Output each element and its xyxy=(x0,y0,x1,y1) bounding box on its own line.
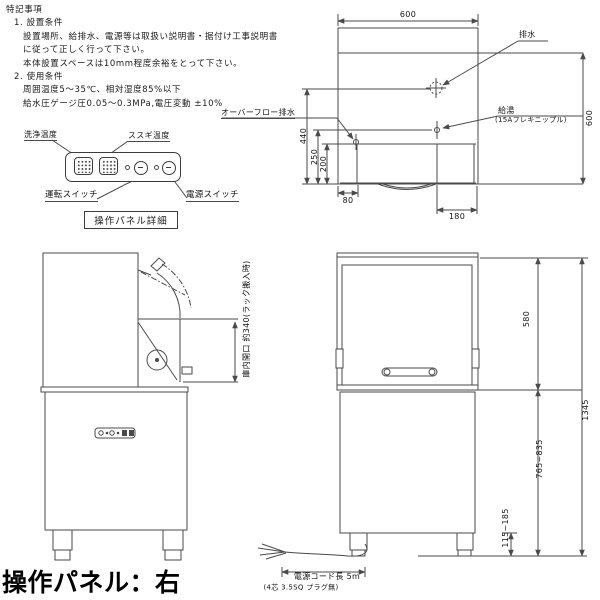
dim-label-180: 180 xyxy=(449,213,465,221)
side-leg-left xyxy=(53,530,72,550)
wash-temp-display xyxy=(74,157,93,175)
hood-front-arc xyxy=(157,273,180,318)
dim-label-440: 440 xyxy=(300,128,308,144)
front-top-band xyxy=(337,253,478,257)
side-leg-right xyxy=(163,530,183,550)
supply-leader-arrow xyxy=(443,116,498,128)
power-switch-button-graphic xyxy=(162,161,176,175)
front-view-drawing xyxy=(240,248,600,600)
side-foot-left xyxy=(55,550,70,560)
front-leg-right xyxy=(457,533,473,550)
overflow-leader-arrow xyxy=(337,118,353,139)
panel-detail-title: 操作パネル詳細 xyxy=(84,211,178,229)
hood-open-trajectory-arc xyxy=(162,264,191,308)
cord-length-label: 電源コード長 5m xyxy=(294,573,360,581)
front-leg-left xyxy=(350,533,367,550)
dim-label-580: 580 xyxy=(523,311,531,327)
side-control-panel xyxy=(95,428,135,438)
front-foot-left xyxy=(352,550,365,556)
indicator-dot xyxy=(154,165,159,170)
power-cord-graphic xyxy=(258,544,367,559)
side-counter-band xyxy=(41,387,188,392)
cord-frayed-ends xyxy=(258,544,286,559)
dim-label-200: 200 xyxy=(320,156,328,172)
overflow-point-marker xyxy=(354,134,359,150)
front-hood-frame xyxy=(337,257,478,385)
cord-spec-label: (4芯 3.5SQ プラグ無) xyxy=(264,585,339,592)
drain-leader-arrow xyxy=(443,41,518,85)
supply-note-label: (15Aフレキニップル) xyxy=(495,117,567,124)
run-switch-button-graphic xyxy=(134,161,148,175)
side-back-column xyxy=(43,253,138,387)
dim-label-plan-depth: 600 xyxy=(586,110,594,126)
plan-body-walls xyxy=(340,144,476,183)
dim-label-765-835: 765~835 xyxy=(536,439,544,478)
supply-point-marker xyxy=(435,121,440,139)
hood-open-trajectory-line xyxy=(141,272,185,295)
wash-temp-label: 洗浄温度 xyxy=(24,131,57,141)
rinse-temp-label: ススギ温度 xyxy=(128,132,170,142)
plan-door-handle-arc xyxy=(378,184,436,190)
side-lower-body xyxy=(45,392,187,530)
rinse-temp-display xyxy=(99,157,118,175)
front-hinge-left xyxy=(336,349,343,368)
dim-label-1345: 1345 xyxy=(582,399,590,421)
dim-label-250: 250 xyxy=(311,149,319,165)
overflow-drain-label: オーバーフロー排水 xyxy=(221,109,295,119)
dim-label-80: 80 xyxy=(343,197,354,205)
drain-point-marker xyxy=(426,78,446,98)
drain-label: 排水 xyxy=(519,31,536,39)
front-foot-right xyxy=(458,550,471,556)
panel-position-note: 操作パネル：右 xyxy=(2,563,181,599)
dim-label-plan-width: 600 xyxy=(400,11,416,19)
dim-label-115-185: 115~185 xyxy=(502,508,510,547)
hood-pivot-center xyxy=(156,359,159,362)
side-foot-right xyxy=(165,550,181,560)
front-lower-body xyxy=(340,392,475,533)
front-hood-door xyxy=(342,265,472,385)
plan-outline xyxy=(338,28,478,184)
indicator-dot xyxy=(125,165,130,170)
installation-drawing-page: 特記事項 1. 設置条件 設置場所、給排水、電源等は取扱い説明書・据付け工事説明… xyxy=(0,0,600,600)
run-switch-label: 運転スイッチ xyxy=(45,191,98,202)
front-hinge-right xyxy=(472,349,479,368)
front-mid-band xyxy=(337,385,478,390)
supply-label: 給湯 xyxy=(498,107,515,115)
front-door-handle xyxy=(382,368,437,376)
control-panel-graphic xyxy=(65,152,181,182)
hood-lower-slant xyxy=(138,322,177,380)
side-nozzle-tab xyxy=(182,367,192,374)
